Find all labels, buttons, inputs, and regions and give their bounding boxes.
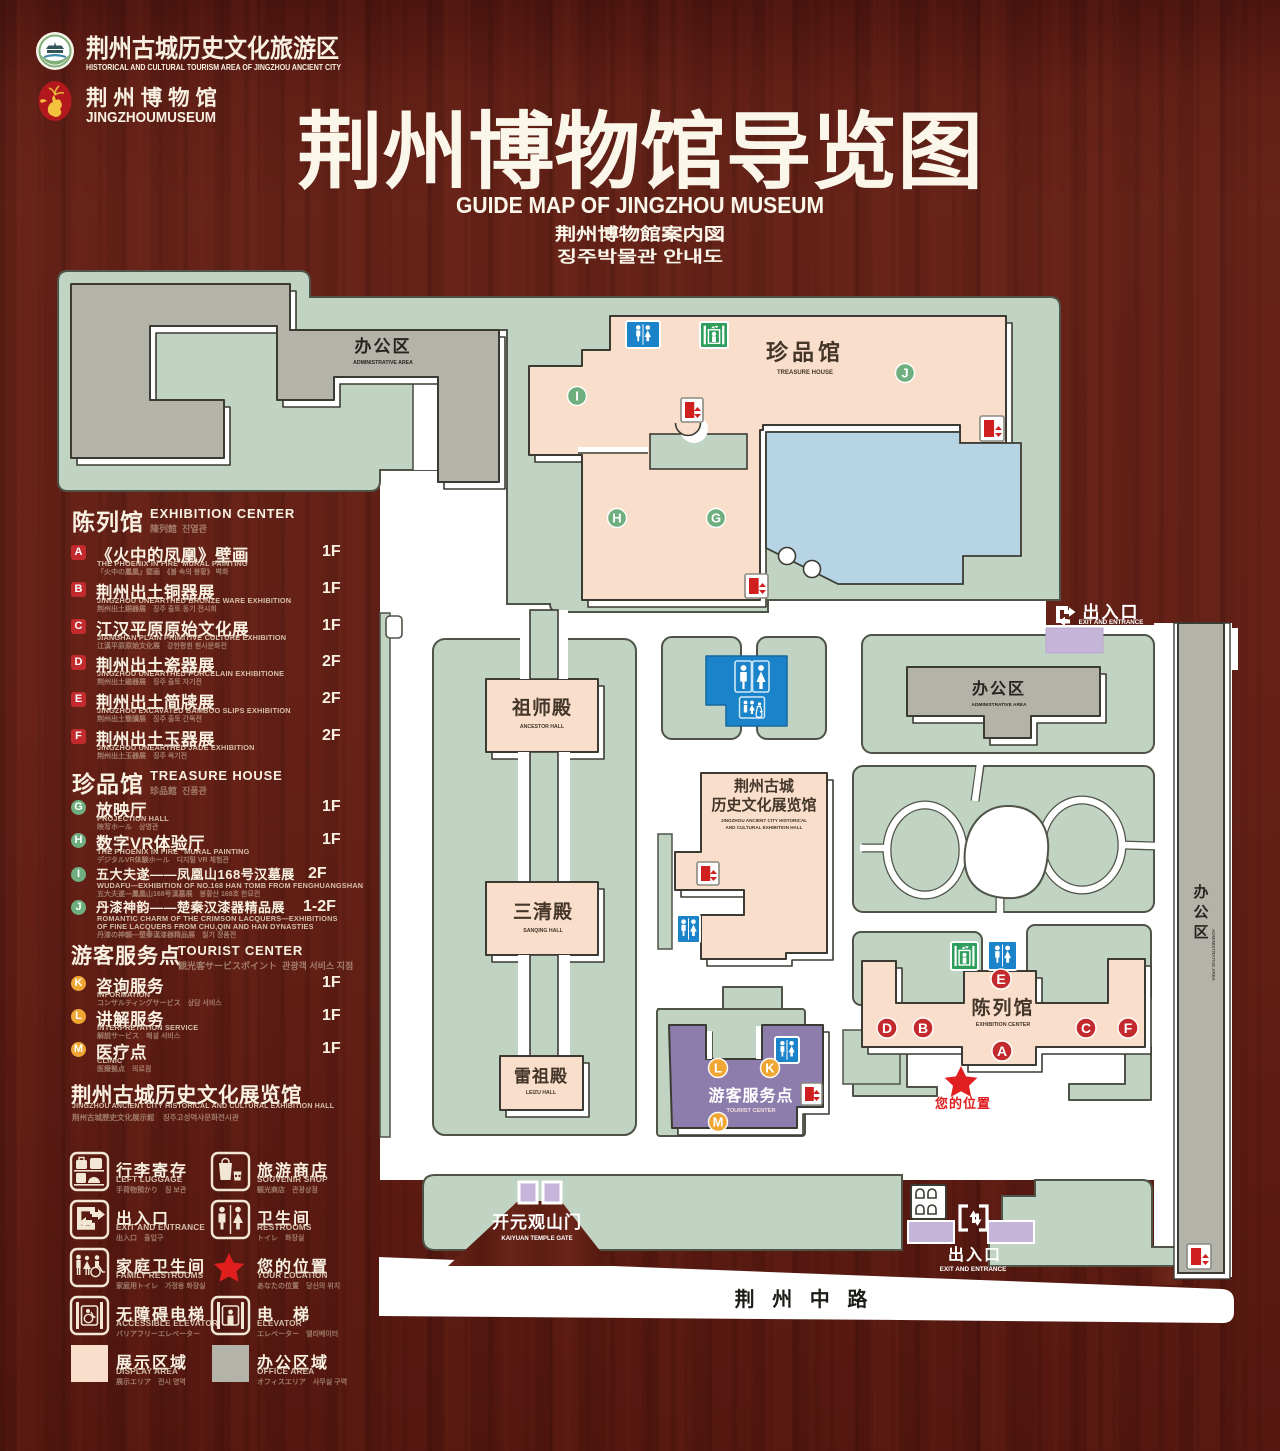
svg-text:荆 州 中 路: 荆 州 中 路 (735, 1287, 874, 1311)
svg-text:您的位置: 您的位置 (935, 1096, 991, 1111)
svg-text:公: 公 (1193, 904, 1208, 921)
svg-text:H: H (612, 511, 621, 526)
svg-text:历史文化展览馆: 历史文化展览馆 (711, 796, 816, 814)
svg-text:JINGZHOUMUSEUM: JINGZHOUMUSEUM (86, 109, 216, 126)
svg-text:D: D (882, 1020, 892, 1036)
svg-text:荆 州 博 物 馆: 荆 州 博 物 馆 (86, 86, 217, 110)
svg-text:开元观山门: 开元观山门 (492, 1212, 582, 1232)
svg-text:荆州古城: 荆州古城 (734, 777, 794, 795)
svg-text:ADMINISTRATIVE AREA: ADMINISTRATIVE AREA (971, 702, 1027, 708)
svg-text:TREASURE HOUSE: TREASURE HOUSE (777, 370, 833, 376)
svg-text:三清殿: 三清殿 (513, 900, 573, 923)
svg-text:区: 区 (1193, 924, 1208, 941)
svg-text:JINGZHOU ANCIENT CITY HISTORIC: JINGZHOU ANCIENT CITY HISTORICAL (721, 818, 807, 823)
svg-text:AND CULTURAL EXHIBITION HALL: AND CULTURAL EXHIBITION HALL (726, 825, 803, 830)
svg-text:G: G (711, 511, 721, 526)
svg-text:징주박물관 안내도: 징주박물관 안내도 (557, 247, 723, 266)
svg-text:TOURIST CENTER: TOURIST CENTER (727, 1108, 776, 1114)
svg-text:A: A (997, 1043, 1007, 1059)
svg-text:祖师殿: 祖师殿 (511, 696, 572, 719)
svg-text:J: J (901, 366, 908, 381)
svg-text:珍品馆: 珍品馆 (766, 340, 844, 365)
svg-text:B: B (918, 1020, 928, 1036)
svg-text:C: C (1081, 1020, 1091, 1036)
svg-text:KAIYUAN TEMPLE GATE: KAIYUAN TEMPLE GATE (501, 1236, 572, 1242)
svg-text:陈列馆: 陈列馆 (971, 996, 1034, 1019)
svg-text:办: 办 (1193, 883, 1208, 901)
svg-text:I: I (575, 389, 579, 404)
svg-text:荆州古城历史文化旅游区: 荆州古城历史文化旅游区 (86, 34, 339, 63)
svg-text:ADMINISTRATIVE AREA: ADMINISTRATIVE AREA (1211, 929, 1216, 982)
svg-text:办公区: 办公区 (972, 679, 1026, 698)
svg-text:ANCESTOR HALL: ANCESTOR HALL (520, 724, 565, 730)
svg-text:M: M (713, 1115, 724, 1130)
svg-text:出入口: 出入口 (948, 1245, 1002, 1264)
svg-text:游客服务点: 游客服务点 (708, 1086, 793, 1105)
svg-text:荆州博物館案内図: 荆州博物館案内図 (555, 224, 725, 244)
svg-text:办公区: 办公区 (355, 336, 412, 356)
svg-text:HISTORICAL AND CULTURAL TOURIS: HISTORICAL AND CULTURAL TOURISM AREA OF … (86, 63, 341, 72)
svg-text:F: F (1124, 1020, 1133, 1036)
svg-text:LEIZU HALL: LEIZU HALL (526, 1090, 557, 1096)
svg-text:GUIDE MAP OF JINGZHOU MUSEUM: GUIDE MAP OF JINGZHOU MUSEUM (456, 192, 824, 218)
svg-text:荆州博物馆导览图: 荆州博物馆导览图 (297, 105, 983, 199)
svg-text:雷祖殿: 雷祖殿 (514, 1066, 568, 1086)
svg-text:L: L (714, 1061, 722, 1076)
svg-text:ADMINISTRATIVE AREA: ADMINISTRATIVE AREA (353, 360, 413, 366)
svg-text:K: K (765, 1061, 775, 1076)
svg-text:EXIT AND ENTRANCE: EXIT AND ENTRANCE (940, 1266, 1008, 1273)
svg-text:EXHIBITION CENTER: EXHIBITION CENTER (976, 1022, 1031, 1028)
svg-text:SANQING HALL: SANQING HALL (523, 928, 563, 934)
svg-text:EXIT AND ENTRANCE: EXIT AND ENTRANCE (1079, 619, 1144, 626)
svg-text:E: E (996, 971, 1005, 987)
